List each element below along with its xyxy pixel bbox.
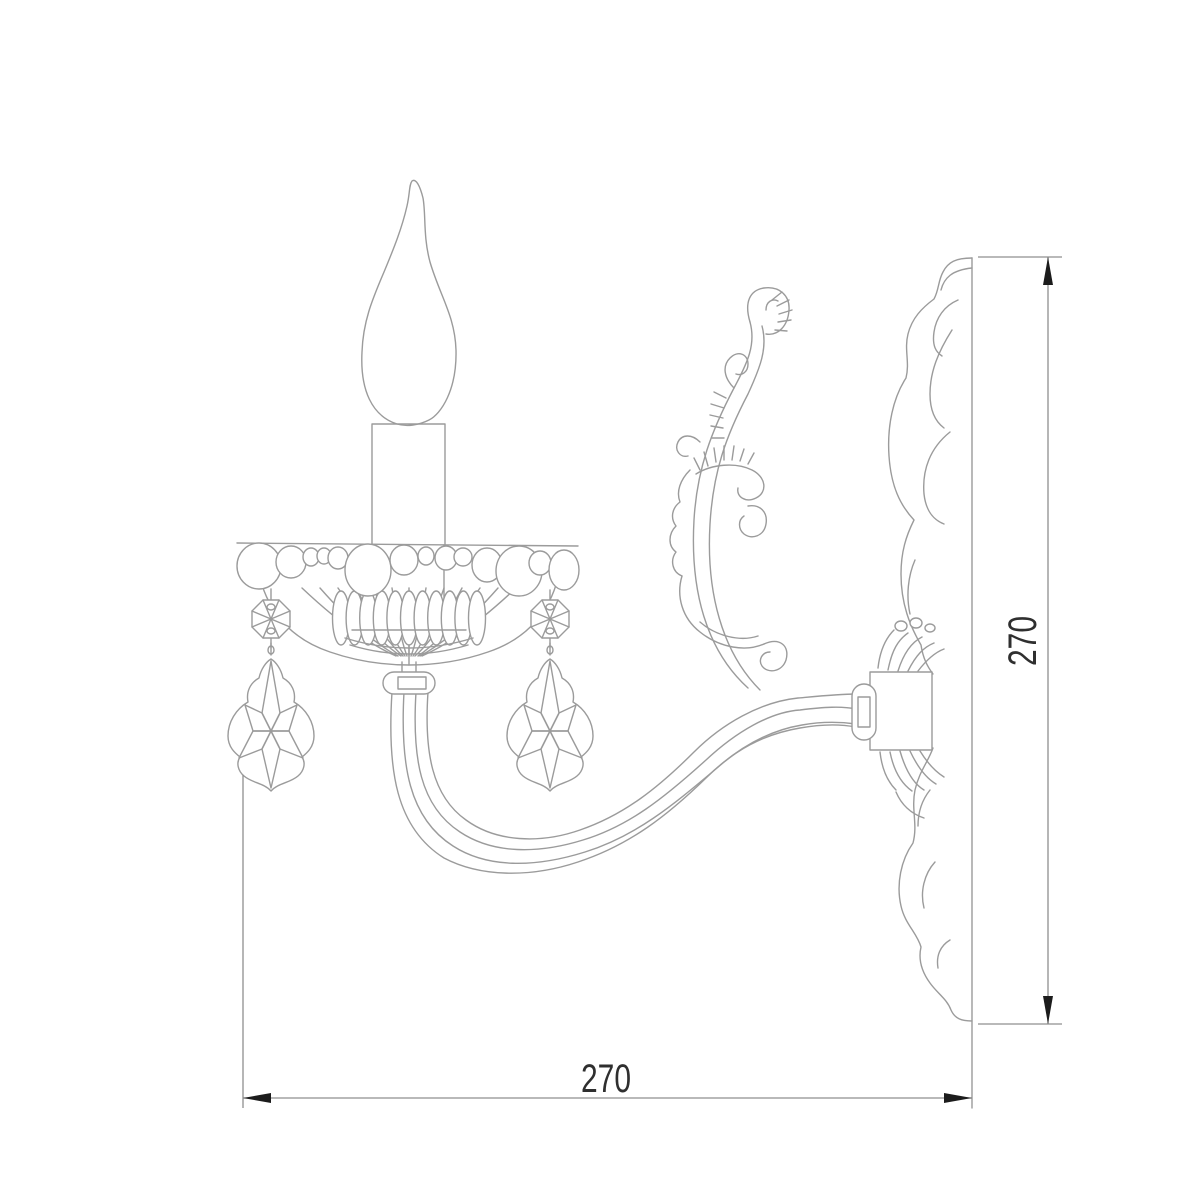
scroll-ornament	[670, 288, 792, 690]
pendant-right	[507, 643, 593, 791]
height-label: 270	[1001, 616, 1045, 666]
arrowhead-bottom	[1043, 996, 1053, 1024]
wall-collar	[852, 684, 876, 740]
width-label: 270	[581, 1057, 631, 1101]
cup-petals	[333, 591, 486, 645]
technical-drawing: 270 270	[0, 0, 1200, 1200]
dimension-height: 270	[978, 257, 1062, 1024]
bead-row	[237, 543, 579, 596]
pendant-left	[228, 643, 314, 791]
bobeche	[237, 543, 579, 672]
crystal-octagon-right	[531, 600, 569, 638]
crystal-octagon-left	[252, 600, 290, 638]
mounting-bracket-box	[870, 672, 932, 750]
arrowhead-right	[944, 1093, 972, 1103]
candle	[362, 180, 456, 545]
sconce-drawing-svg: 270 270	[0, 0, 1200, 1200]
arrowhead-top	[1043, 257, 1053, 285]
arm	[391, 692, 856, 873]
backplate	[870, 258, 972, 1108]
flame-bulb	[362, 180, 456, 425]
arm-tube	[391, 692, 856, 873]
arrowhead-left	[243, 1093, 271, 1103]
candle-sleeve	[372, 424, 445, 545]
bobeche-collar	[383, 672, 435, 694]
